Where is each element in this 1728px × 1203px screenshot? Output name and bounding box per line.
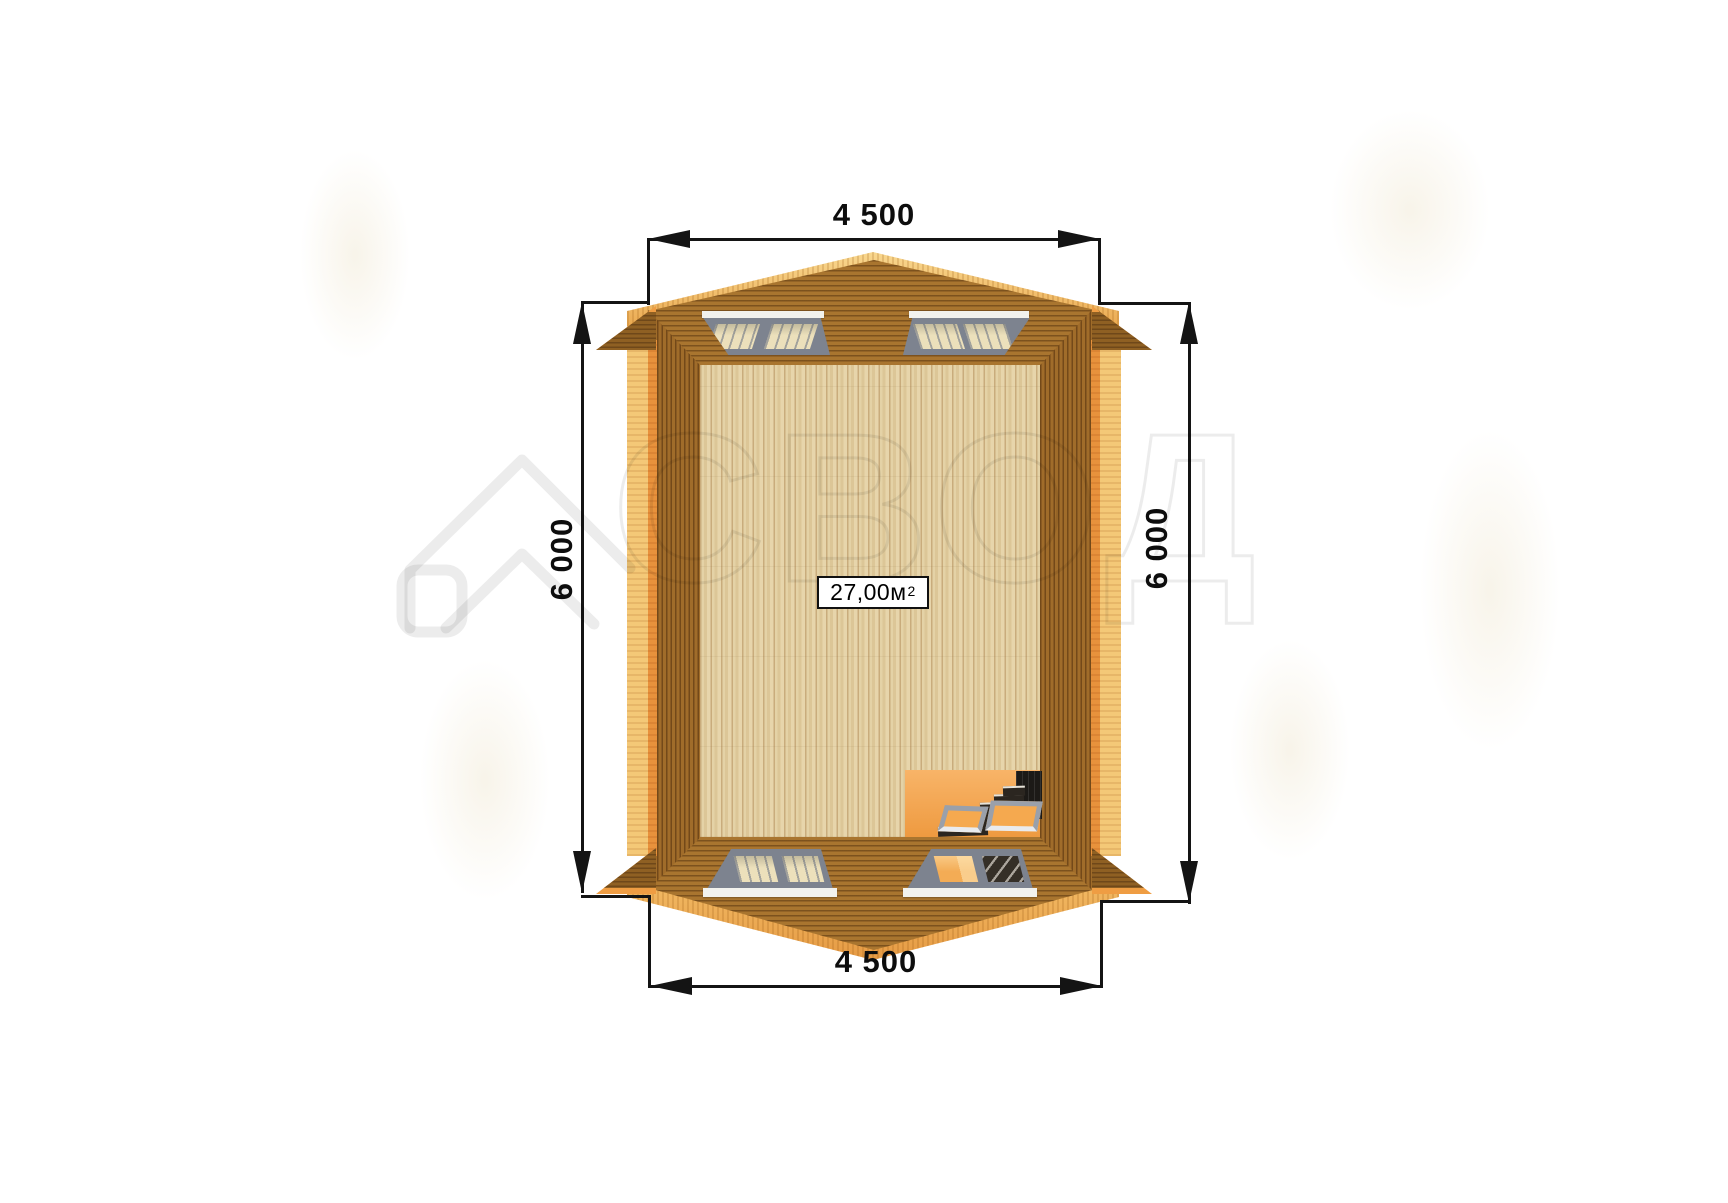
dimension-top-label: 4 500 bbox=[774, 197, 974, 233]
window-sill bbox=[702, 311, 824, 318]
background-blob bbox=[1230, 640, 1350, 860]
window-pane-stairs bbox=[982, 856, 1024, 882]
dimension-line-top bbox=[648, 238, 1100, 241]
window-sill bbox=[703, 888, 837, 897]
window-pane bbox=[913, 324, 965, 349]
background-blob bbox=[420, 660, 550, 900]
dimension-arrow-icon bbox=[573, 302, 591, 344]
dimension-extension-line bbox=[1100, 900, 1103, 988]
dimension-extension-line bbox=[581, 895, 651, 898]
background-blob bbox=[1330, 110, 1490, 310]
dimension-arrow-icon bbox=[1180, 861, 1198, 903]
window-pane bbox=[764, 324, 818, 349]
window-frame bbox=[903, 849, 1037, 889]
window-sill bbox=[903, 888, 1037, 897]
lower-floor-window bbox=[938, 805, 989, 833]
dimension-extension-line bbox=[1098, 238, 1101, 305]
dimension-left-label: 6 000 bbox=[544, 479, 580, 639]
window-pane-orange bbox=[934, 856, 978, 882]
window-frame bbox=[903, 318, 1035, 355]
dimension-arrow-icon bbox=[1180, 302, 1198, 344]
skylight-window-top-right bbox=[903, 311, 1035, 355]
dimension-arrow-icon bbox=[650, 977, 692, 995]
background-blob bbox=[1420, 430, 1560, 750]
window-sill bbox=[909, 311, 1029, 318]
dimension-extension-line bbox=[1100, 302, 1190, 305]
window-pane bbox=[963, 324, 1013, 349]
dimension-extension-line bbox=[647, 238, 650, 305]
skylight-window-bottom-right bbox=[903, 849, 1037, 901]
floor-plan-canvas: 4 500 4 500 6 000 6 000 bbox=[0, 0, 1728, 1203]
window-frame bbox=[703, 849, 837, 889]
area-label: 27,00м2 bbox=[817, 576, 929, 609]
eave-boards bbox=[596, 312, 656, 356]
dimension-line-bottom bbox=[650, 985, 1102, 988]
skylight-window-top-left bbox=[698, 311, 830, 355]
dimension-arrow-icon bbox=[1058, 230, 1100, 248]
dimension-line-left bbox=[581, 302, 584, 893]
dimension-arrow-icon bbox=[648, 230, 690, 248]
eave-corner-bottom-left bbox=[596, 848, 656, 894]
dimension-extension-line bbox=[1102, 900, 1191, 903]
side-wall-left bbox=[627, 340, 657, 856]
skylight-window-bottom-left bbox=[703, 849, 837, 901]
side-wall-right bbox=[1091, 340, 1121, 856]
dimension-arrow-icon bbox=[1060, 977, 1102, 995]
area-value: 27,00м bbox=[830, 579, 906, 606]
dimension-extension-line bbox=[581, 301, 650, 304]
dimension-arrow-icon bbox=[573, 851, 591, 893]
watermark-house-logo-icon bbox=[372, 420, 652, 650]
background-blob bbox=[300, 150, 410, 360]
dimension-extension-line bbox=[648, 896, 651, 988]
window-pane bbox=[734, 856, 778, 882]
dimension-right-label: 6 000 bbox=[1139, 468, 1175, 628]
stair-step bbox=[1003, 786, 1025, 797]
eave-corner-top-right bbox=[1092, 306, 1152, 350]
dimension-line-right bbox=[1188, 302, 1191, 904]
eave-corner-bottom-right bbox=[1092, 848, 1152, 894]
eave-boards bbox=[1092, 312, 1152, 356]
dimension-bottom-label: 4 500 bbox=[776, 944, 976, 980]
window-pane bbox=[708, 324, 760, 349]
roof-band-right bbox=[1040, 310, 1092, 890]
window-pane bbox=[782, 856, 824, 882]
window-frame bbox=[698, 318, 830, 355]
eave-corner-top-left bbox=[596, 306, 656, 350]
lower-floor-window bbox=[985, 801, 1043, 832]
